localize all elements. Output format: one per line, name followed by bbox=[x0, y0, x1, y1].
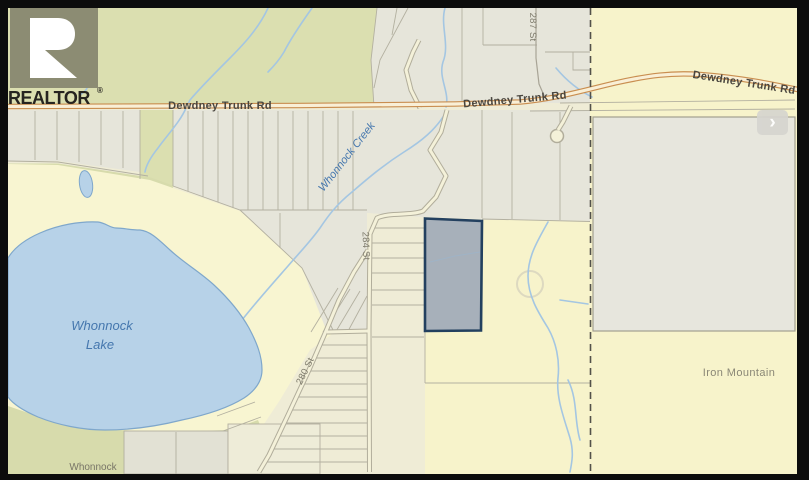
lake-label-line1: Whonnock bbox=[71, 318, 134, 333]
map-viewport[interactable]: Dewdney Trunk Rd Dewdney Trunk Rd Dewdne… bbox=[0, 0, 809, 480]
map-canvas[interactable]: Dewdney Trunk Rd Dewdney Trunk Rd Dewdne… bbox=[0, 0, 809, 480]
chevron-right-icon: › bbox=[769, 113, 775, 132]
large-parcel-east bbox=[593, 117, 795, 331]
registered-mark: ® bbox=[97, 86, 103, 95]
centre-label-line1: Whonnock bbox=[69, 462, 117, 473]
highlighted-listing-parcel[interactable] bbox=[425, 219, 482, 332]
road-label-dewdney-west: Dewdney Trunk Rd bbox=[168, 100, 272, 112]
street-label-287: 287 St bbox=[527, 13, 538, 42]
next-image-button[interactable]: › bbox=[757, 110, 788, 135]
realtor-logo bbox=[10, 8, 98, 88]
region-parcels-east bbox=[367, 110, 590, 221]
realtor-wordmark: REALTOR bbox=[8, 88, 90, 108]
street-label-284: 284 St bbox=[360, 231, 372, 260]
iron-mountain-label: Iron Mountain bbox=[703, 367, 775, 379]
lake-label-line2: Lake bbox=[86, 337, 114, 352]
